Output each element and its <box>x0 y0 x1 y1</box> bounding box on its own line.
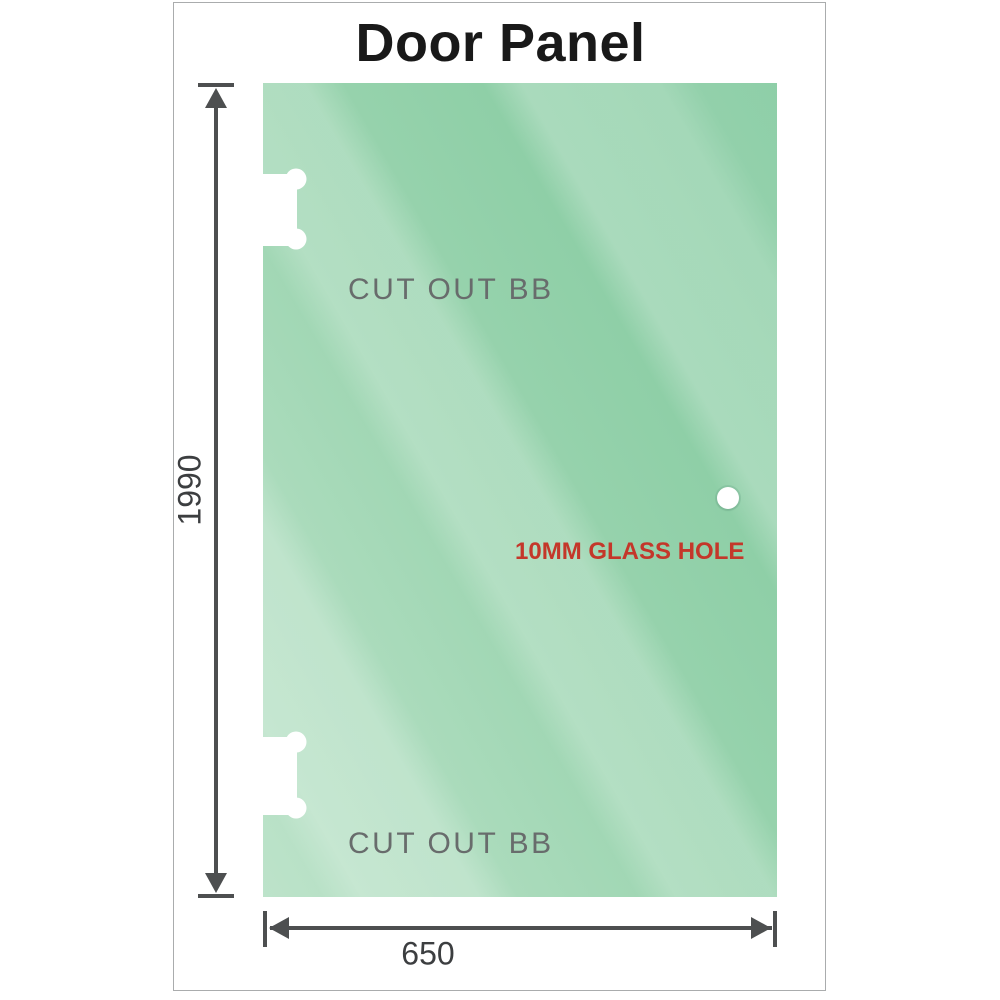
arrow-left-icon <box>269 917 289 939</box>
height-dimension-tick-top <box>198 83 234 87</box>
arrow-right-icon <box>751 917 771 939</box>
glass-panel: CUT OUT BB CUT OUT BB 10MM GLASS HOLE <box>263 83 777 897</box>
height-dimension-tick-bottom <box>198 894 234 898</box>
hinge-cutout-top-icon <box>263 168 308 254</box>
glass-hole-icon <box>717 487 739 509</box>
page-title: Door Panel <box>173 12 828 74</box>
width-dimension-line <box>270 926 772 930</box>
height-dimension-value: 1990 <box>172 454 209 525</box>
cutout-top-label: CUT OUT BB <box>348 273 554 307</box>
cutout-bottom-label: CUT OUT BB <box>348 827 554 861</box>
width-dimension-value: 650 <box>401 936 454 973</box>
hinge-cutout-bottom-icon <box>263 731 308 823</box>
width-dimension-tick-right <box>773 911 777 947</box>
width-dimension-tick-left <box>263 911 267 947</box>
glass-hole-label: 10MM GLASS HOLE <box>515 538 744 566</box>
arrow-down-icon <box>205 873 227 893</box>
door-panel-diagram: Door Panel CUT OUT BB CUT OUT BB 10MM GL… <box>0 0 1000 1000</box>
height-dimension-line <box>214 96 218 884</box>
arrow-up-icon <box>205 88 227 108</box>
